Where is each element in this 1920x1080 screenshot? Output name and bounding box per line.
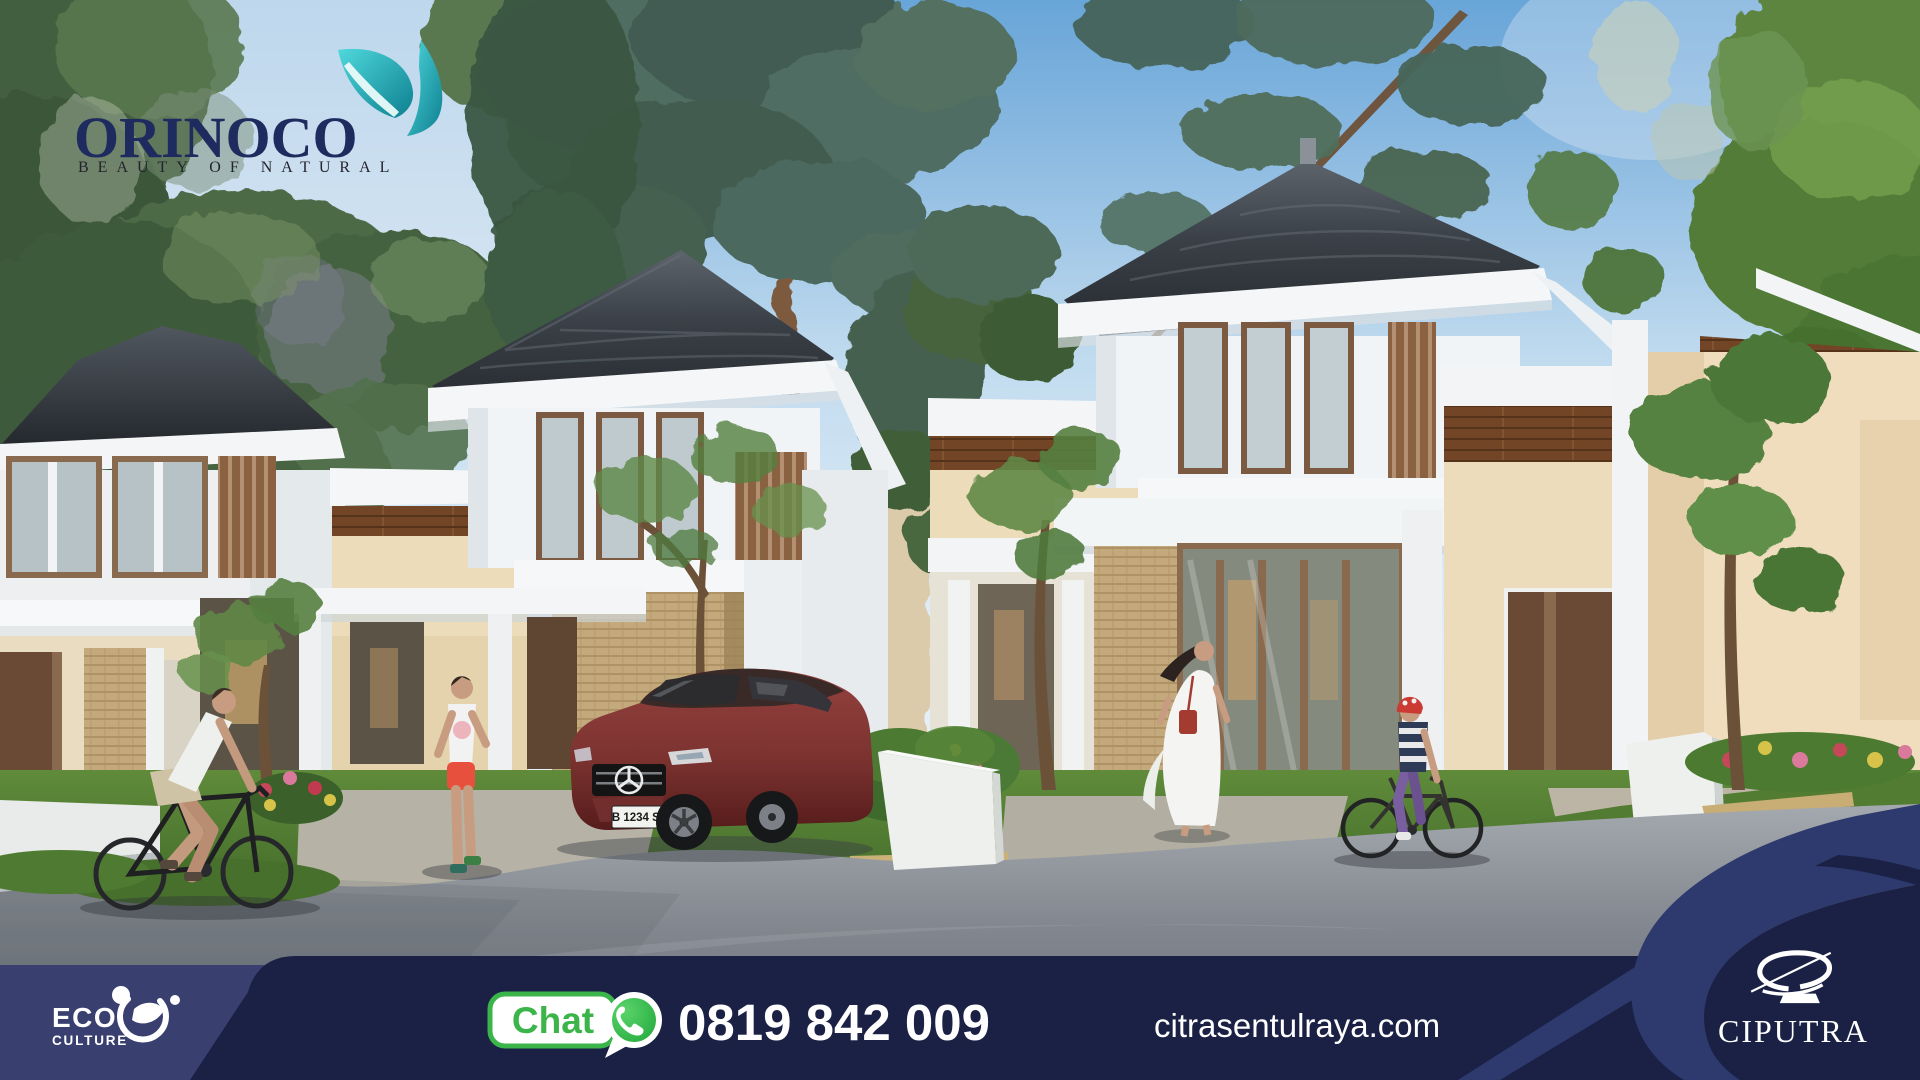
svg-text:0819 842 009: 0819 842 009 — [678, 994, 990, 1051]
svg-text:ECO: ECO — [52, 1002, 117, 1033]
svg-text:citrasentulraya.com: citrasentulraya.com — [1154, 1007, 1440, 1044]
svg-text:BEAUTY OF NATURAL: BEAUTY OF NATURAL — [78, 159, 398, 176]
svg-text:CULTURE: CULTURE — [52, 1033, 128, 1048]
svg-text:Chat: Chat — [512, 1000, 594, 1041]
svg-text:CIPUTRA: CIPUTRA — [1718, 1013, 1869, 1049]
